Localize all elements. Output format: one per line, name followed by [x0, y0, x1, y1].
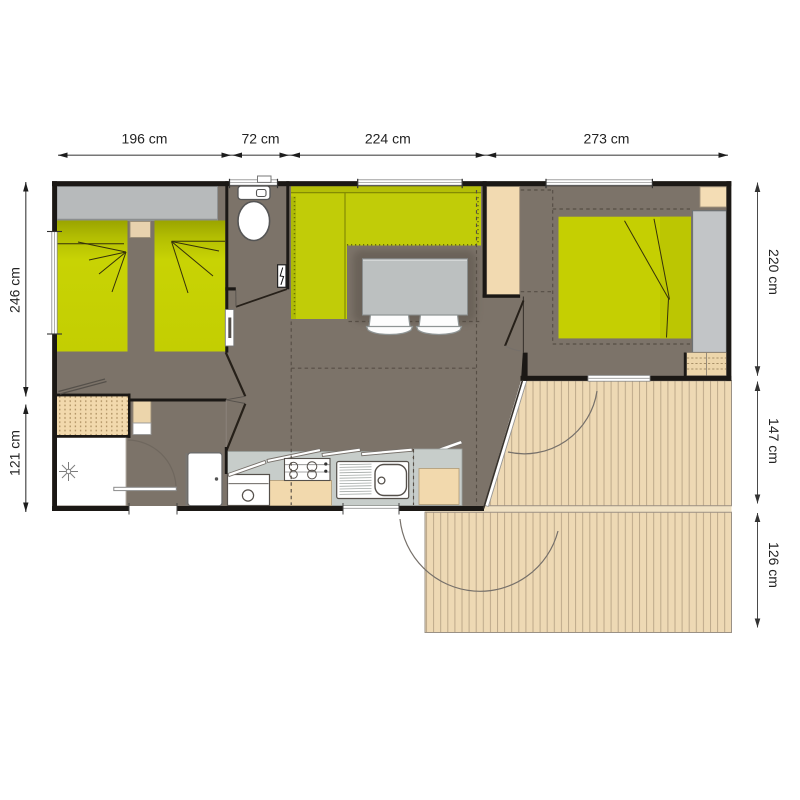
svg-text:224 cm: 224 cm [365, 131, 411, 147]
svg-text:126 cm: 126 cm [766, 542, 782, 588]
svg-text:196 cm: 196 cm [122, 131, 168, 147]
svg-text:220 cm: 220 cm [766, 249, 782, 295]
svg-text:246 cm: 246 cm [7, 267, 23, 313]
svg-text:273 cm: 273 cm [584, 131, 630, 147]
svg-text:147 cm: 147 cm [766, 418, 782, 464]
svg-text:72 cm: 72 cm [241, 131, 279, 147]
svg-text:121 cm: 121 cm [7, 430, 23, 476]
